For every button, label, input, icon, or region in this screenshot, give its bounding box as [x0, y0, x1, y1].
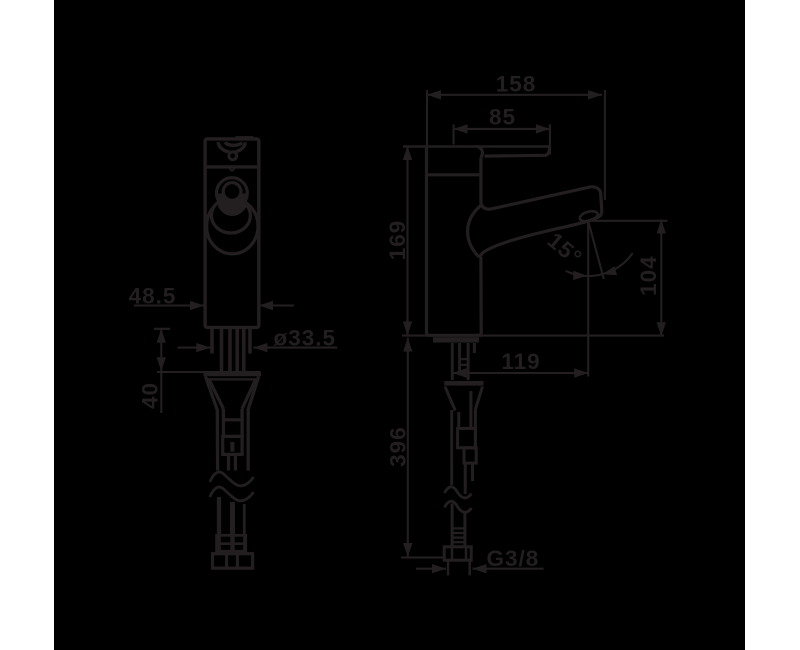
svg-text:119: 119 [501, 349, 540, 374]
svg-text:G3/8: G3/8 [487, 546, 540, 571]
svg-text:104: 104 [636, 255, 661, 296]
svg-text:85: 85 [489, 105, 516, 130]
svg-text:ø33.5: ø33.5 [274, 326, 337, 351]
svg-text:48.5: 48.5 [129, 284, 177, 309]
svg-text:158: 158 [496, 72, 537, 97]
svg-text:40: 40 [138, 382, 163, 409]
svg-text:169: 169 [385, 220, 410, 261]
svg-text:396: 396 [385, 426, 410, 467]
